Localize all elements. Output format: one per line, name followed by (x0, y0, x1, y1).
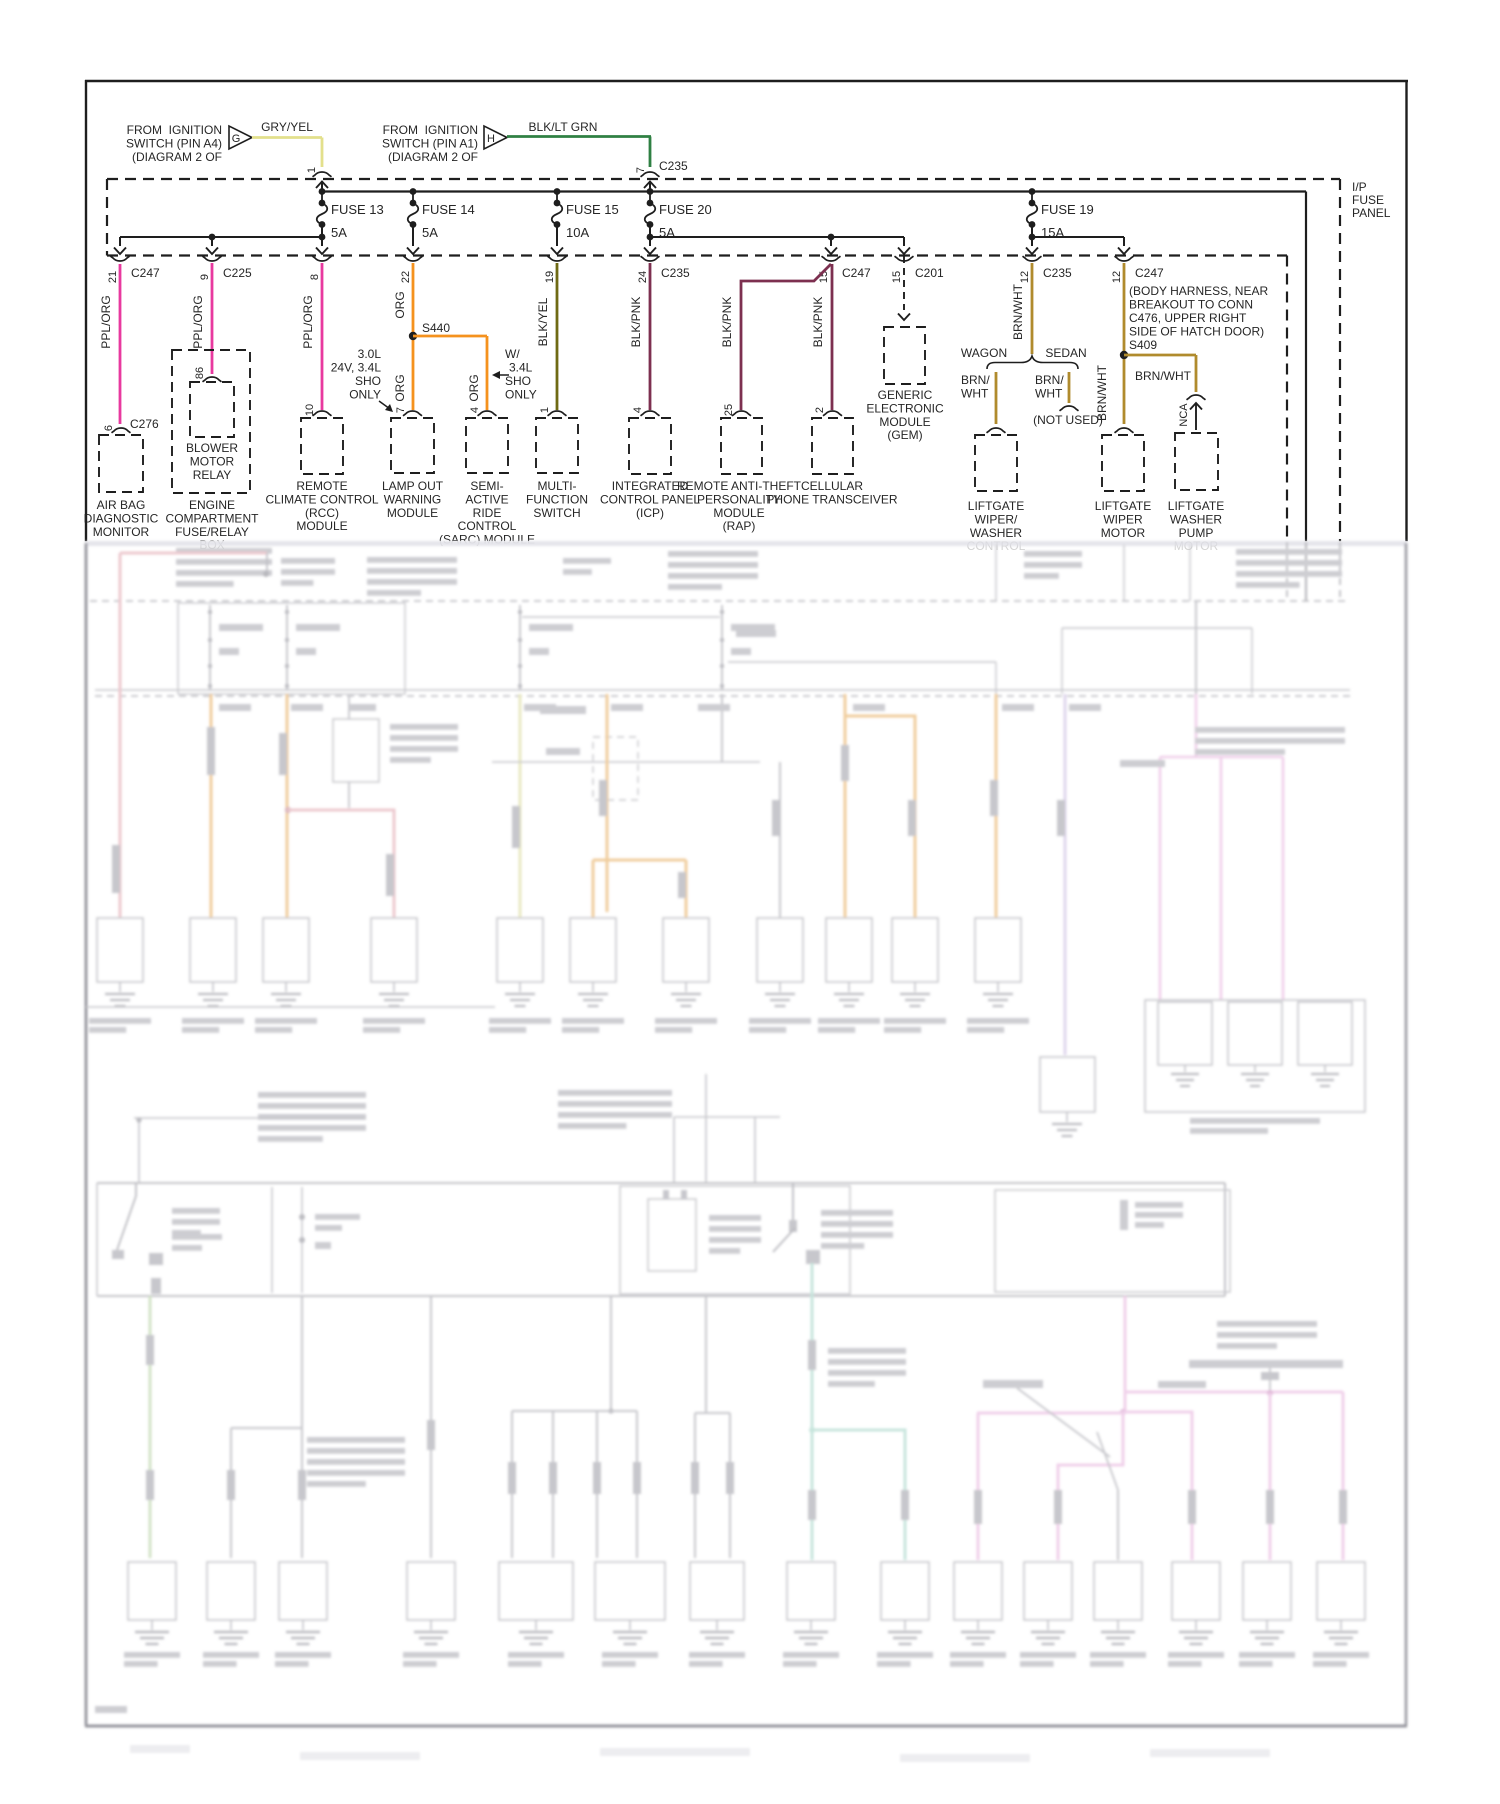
svg-text:FUNCTION: FUNCTION (526, 492, 588, 506)
svg-text:FUSE/RELAY: FUSE/RELAY (175, 525, 249, 539)
svg-text:(DIAGRAM 2 OF: (DIAGRAM 2 OF (132, 150, 222, 164)
svg-text:LIFTGATE: LIFTGATE (1168, 499, 1224, 513)
svg-text:W/: W/ (505, 347, 520, 361)
svg-text:RELAY: RELAY (193, 468, 231, 482)
svg-text:21: 21 (107, 271, 119, 283)
svg-text:PPL/ORG: PPL/ORG (99, 295, 113, 348)
svg-text:86: 86 (194, 367, 206, 379)
svg-text:C247: C247 (131, 266, 160, 280)
svg-text:FROM IGNITION: FROM IGNITION (383, 123, 478, 137)
svg-text:GENERIC: GENERIC (878, 388, 933, 402)
svg-text:5A: 5A (331, 225, 347, 240)
svg-text:S440: S440 (422, 321, 450, 335)
svg-text:C235: C235 (659, 159, 688, 173)
svg-text:BRN/WHT: BRN/WHT (1135, 369, 1192, 383)
svg-text:FUSE 20: FUSE 20 (659, 202, 712, 217)
svg-text:PPL/ORG: PPL/ORG (191, 295, 205, 348)
svg-text:FUSE 19: FUSE 19 (1041, 202, 1094, 217)
svg-text:BRN/WHT: BRN/WHT (1011, 283, 1025, 340)
svg-text:MODULE: MODULE (879, 415, 930, 429)
svg-text:FUSE: FUSE (1352, 193, 1384, 207)
svg-text:G: G (232, 133, 241, 145)
svg-text:BRN/WHT: BRN/WHT (1095, 364, 1109, 421)
svg-text:SEMI-: SEMI- (470, 479, 503, 493)
svg-text:ACTIVE: ACTIVE (465, 492, 508, 506)
svg-text:FUSE 14: FUSE 14 (422, 202, 475, 217)
svg-text:CELLULAR: CELLULAR (801, 479, 863, 493)
svg-text:REMOTE: REMOTE (296, 479, 347, 493)
svg-text:5A: 5A (422, 225, 438, 240)
svg-text:WIPER/: WIPER/ (975, 512, 1018, 526)
svg-text:9: 9 (199, 274, 211, 280)
svg-text:FUSE 13: FUSE 13 (331, 202, 384, 217)
svg-text:MODULE: MODULE (713, 506, 764, 520)
svg-text:12: 12 (1111, 271, 1123, 283)
svg-text:WASHER: WASHER (1170, 512, 1223, 526)
svg-text:SWITCH (PIN A1): SWITCH (PIN A1) (382, 137, 478, 151)
svg-text:1: 1 (539, 407, 551, 413)
svg-text:19: 19 (544, 271, 556, 283)
svg-text:ENGINE: ENGINE (189, 498, 235, 512)
svg-text:CONTROL PANEL: CONTROL PANEL (600, 492, 700, 506)
svg-text:LAMP OUT: LAMP OUT (382, 479, 444, 493)
svg-text:C225: C225 (223, 266, 252, 280)
svg-text:MODULE: MODULE (296, 519, 347, 533)
svg-text:3.0L: 3.0L (358, 347, 382, 361)
svg-text:FROM IGNITION: FROM IGNITION (127, 123, 222, 137)
svg-text:SHO: SHO (505, 374, 531, 388)
svg-text:22: 22 (400, 271, 412, 283)
svg-text:7: 7 (635, 167, 647, 173)
svg-text:LIFTGATE: LIFTGATE (968, 499, 1024, 513)
svg-text:BRN/: BRN/ (1035, 373, 1064, 387)
svg-text:MULTI-: MULTI- (537, 479, 576, 493)
svg-text:DIAGNOSTIC: DIAGNOSTIC (84, 511, 159, 525)
svg-text:WAGON: WAGON (961, 346, 1007, 360)
svg-text:C247: C247 (1135, 266, 1164, 280)
svg-text:S409: S409 (1129, 338, 1157, 352)
svg-text:CONTROL: CONTROL (458, 519, 517, 533)
svg-text:12: 12 (1019, 271, 1031, 283)
svg-text:ORG: ORG (393, 291, 407, 318)
svg-text:PHONE TRANSCEIVER: PHONE TRANSCEIVER (766, 492, 897, 506)
svg-text:BRN/: BRN/ (961, 373, 990, 387)
svg-text:RIDE: RIDE (473, 506, 502, 520)
svg-text:C235: C235 (661, 266, 690, 280)
svg-text:10A: 10A (566, 225, 589, 240)
svg-text:24V, 3.4L: 24V, 3.4L (331, 361, 382, 375)
svg-text:PPL/ORG: PPL/ORG (301, 295, 315, 348)
svg-text:BLK/YEL: BLK/YEL (536, 297, 550, 346)
svg-text:AIR BAG: AIR BAG (97, 498, 146, 512)
svg-text:REMOTE ANTI-THEFT: REMOTE ANTI-THEFT (677, 479, 802, 493)
svg-text:SWITCH: SWITCH (533, 506, 580, 520)
svg-text:C276: C276 (130, 417, 159, 431)
svg-text:ELECTRONIC: ELECTRONIC (866, 401, 944, 415)
svg-text:FUSE 15: FUSE 15 (566, 202, 619, 217)
svg-text:LIFTGATE: LIFTGATE (1095, 499, 1151, 513)
svg-text:BLK/PNK: BLK/PNK (720, 297, 734, 348)
svg-text:SWITCH (PIN A4): SWITCH (PIN A4) (126, 137, 222, 151)
svg-text:C201: C201 (915, 266, 944, 280)
svg-text:6: 6 (103, 425, 115, 431)
svg-text:4: 4 (469, 407, 481, 413)
svg-text:WHT: WHT (1035, 387, 1063, 401)
svg-text:MOTOR: MOTOR (1101, 526, 1146, 540)
svg-text:(NOT USED): (NOT USED) (1033, 413, 1103, 427)
svg-text:GRY/YEL: GRY/YEL (261, 120, 313, 134)
svg-text:C235: C235 (1043, 266, 1072, 280)
svg-text:(DIAGRAM 2 OF: (DIAGRAM 2 OF (388, 150, 478, 164)
svg-text:WIPER: WIPER (1103, 512, 1143, 526)
svg-text:PUMP: PUMP (1179, 526, 1214, 540)
svg-text:WHT: WHT (961, 387, 989, 401)
svg-text:COMPARTMENT: COMPARTMENT (166, 511, 260, 525)
svg-text:ORG: ORG (393, 374, 407, 401)
svg-text:NCA: NCA (1178, 403, 1190, 427)
svg-text:1: 1 (306, 167, 318, 173)
svg-text:MONITOR: MONITOR (93, 525, 150, 539)
svg-text:H: H (487, 133, 495, 145)
svg-text:ONLY: ONLY (505, 388, 537, 402)
svg-text:WASHER: WASHER (970, 526, 1023, 540)
svg-text:15: 15 (891, 271, 903, 283)
svg-text:BLK/PNK: BLK/PNK (811, 297, 825, 348)
svg-text:SEDAN: SEDAN (1045, 346, 1086, 360)
svg-text:(BODY HARNESS, NEAR: (BODY HARNESS, NEAR (1129, 284, 1268, 298)
svg-text:3.4L: 3.4L (509, 361, 533, 375)
svg-text:MOTOR: MOTOR (190, 454, 235, 468)
svg-text:MODULE: MODULE (387, 506, 438, 520)
svg-text:CLIMATE CONTROL: CLIMATE CONTROL (265, 492, 378, 506)
svg-text:BLK/LT GRN: BLK/LT GRN (529, 120, 598, 134)
svg-text:2: 2 (814, 407, 826, 413)
svg-text:(RAP): (RAP) (723, 519, 756, 533)
svg-text:(RCC): (RCC) (305, 506, 339, 520)
svg-text:BREAKOUT TO CONN: BREAKOUT TO CONN (1129, 298, 1253, 312)
svg-text:(ICP): (ICP) (636, 506, 664, 520)
svg-text:ONLY: ONLY (349, 388, 381, 402)
svg-text:I/P: I/P (1352, 180, 1367, 194)
svg-text:SHO: SHO (355, 374, 381, 388)
svg-text:PANEL: PANEL (1352, 206, 1391, 220)
svg-text:ORG: ORG (467, 374, 481, 401)
svg-text:BLOWER: BLOWER (186, 441, 238, 455)
svg-text:8: 8 (309, 274, 321, 280)
svg-text:7: 7 (395, 407, 407, 413)
svg-text:C476, UPPER RIGHT: C476, UPPER RIGHT (1129, 311, 1247, 325)
svg-text:(GEM): (GEM) (887, 428, 922, 442)
svg-text:C247: C247 (842, 266, 871, 280)
svg-text:24: 24 (637, 271, 649, 283)
svg-text:BLK/PNK: BLK/PNK (629, 297, 643, 348)
svg-text:SIDE OF HATCH DOOR): SIDE OF HATCH DOOR) (1129, 325, 1264, 339)
svg-text:4: 4 (632, 407, 644, 413)
svg-text:WARNING: WARNING (384, 492, 442, 506)
